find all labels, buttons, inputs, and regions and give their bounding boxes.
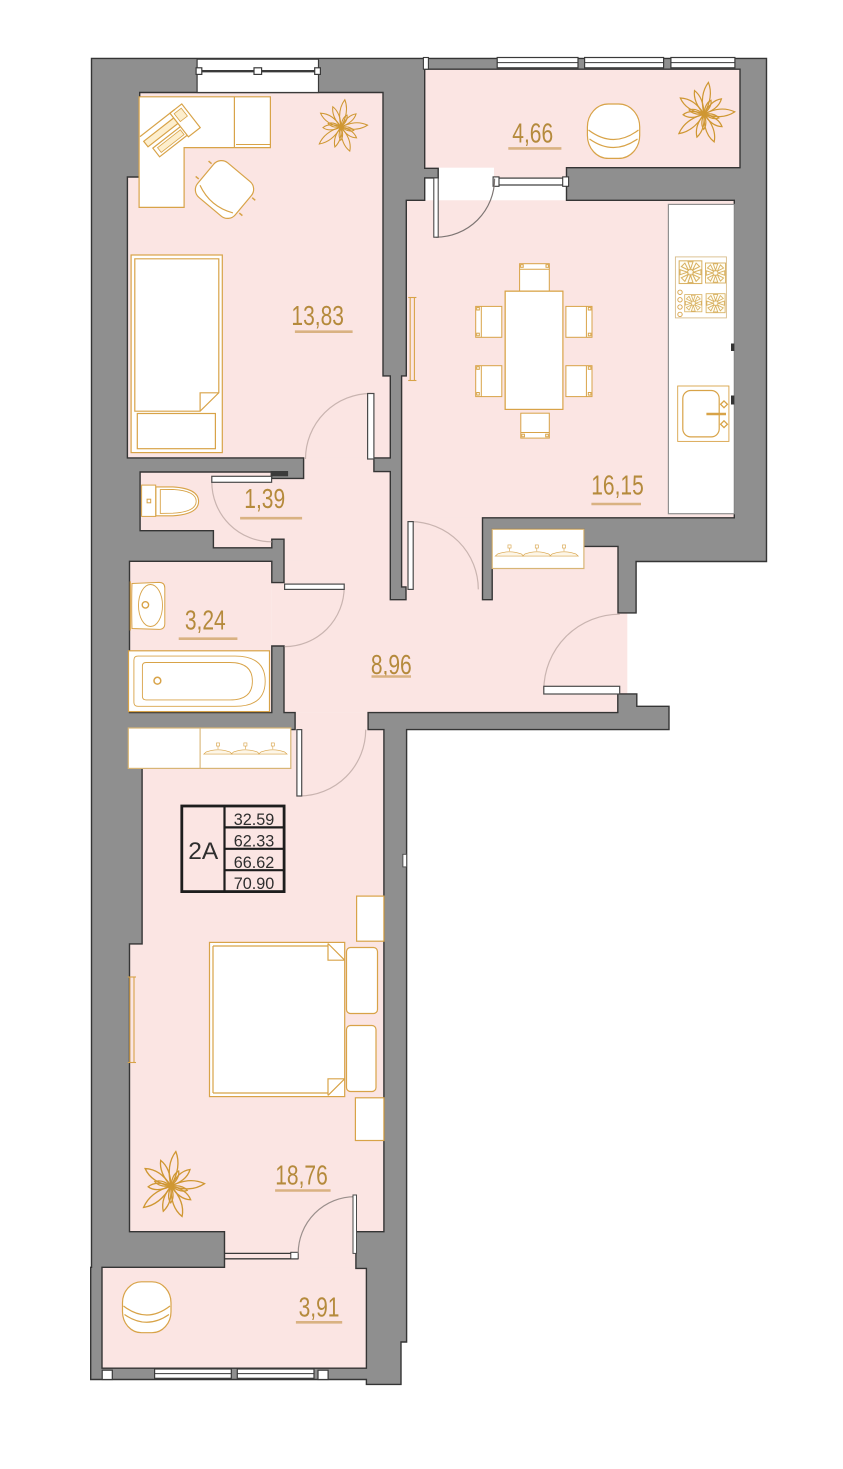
svg-text:18,76: 18,76	[275, 1161, 328, 1192]
svg-text:32.59: 32.59	[234, 811, 275, 829]
svg-text:70.90: 70.90	[234, 875, 275, 893]
svg-text:13,83: 13,83	[291, 301, 344, 332]
svg-text:62.33: 62.33	[234, 832, 275, 850]
svg-text:2A: 2A	[188, 838, 219, 865]
svg-text:3,24: 3,24	[185, 606, 226, 637]
svg-text:4,66: 4,66	[512, 119, 553, 150]
svg-text:16,15: 16,15	[591, 471, 644, 502]
svg-text:3,91: 3,91	[299, 1293, 340, 1324]
svg-text:1,39: 1,39	[244, 484, 285, 515]
svg-text:66.62: 66.62	[234, 854, 275, 872]
